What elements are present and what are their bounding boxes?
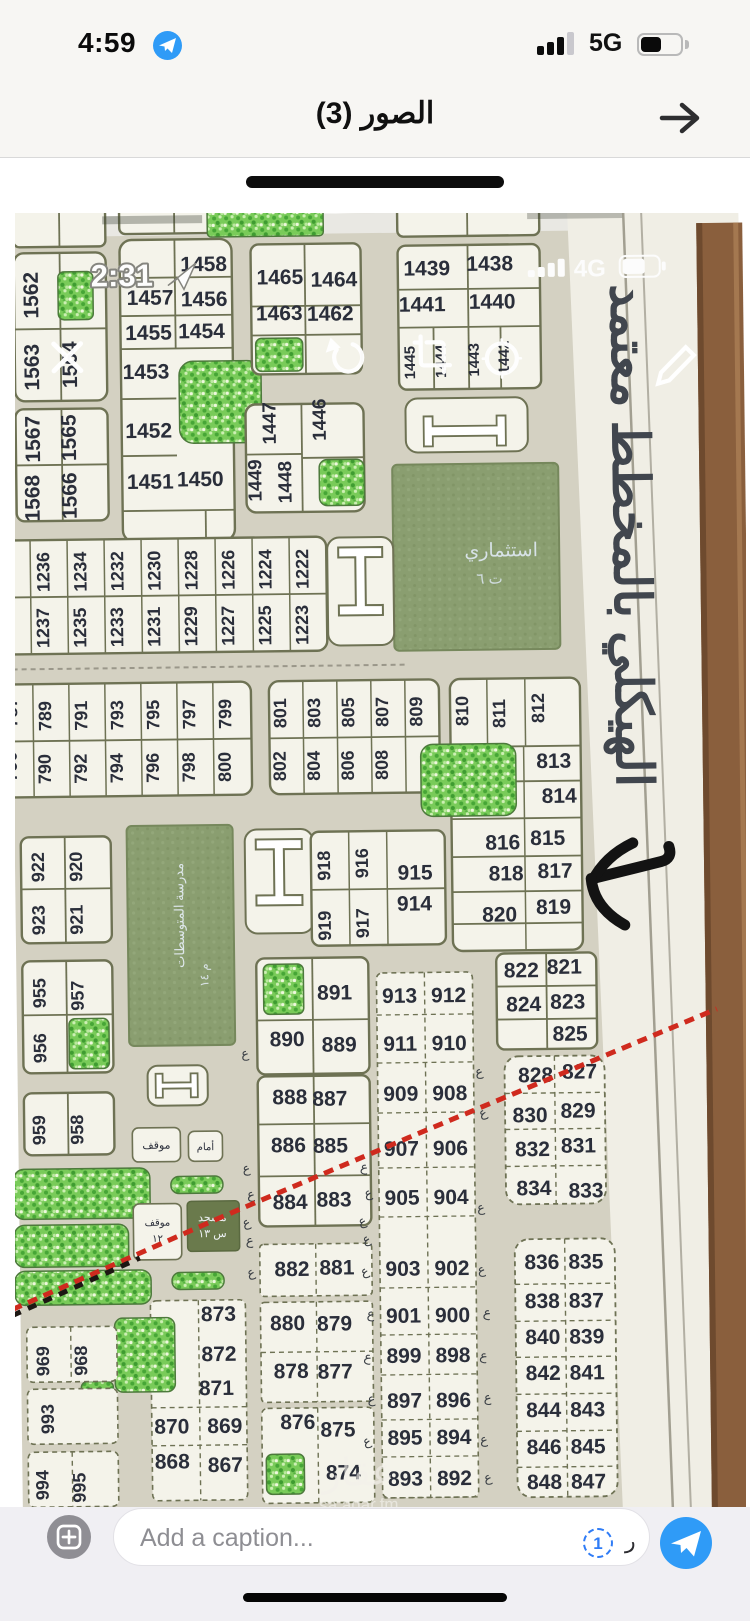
svg-text:ع: ع — [484, 1390, 493, 1406]
svg-text:805: 805 — [338, 697, 358, 727]
svg-text:1447: 1447 — [259, 402, 281, 445]
svg-text:883: 883 — [316, 1188, 351, 1211]
svg-text:1446: 1446 — [309, 398, 331, 441]
svg-text:مدرسة المتوسطات: مدرسة المتوسطات — [171, 863, 188, 968]
svg-text:793: 793 — [107, 700, 127, 730]
svg-text:831: 831 — [561, 1134, 597, 1157]
svg-text:879: 879 — [317, 1312, 352, 1335]
svg-text:813: 813 — [536, 750, 571, 773]
svg-text:1235: 1235 — [70, 608, 90, 648]
svg-text:1465: 1465 — [256, 266, 303, 290]
svg-text:958: 958 — [67, 1115, 87, 1145]
svg-text:841: 841 — [570, 1361, 606, 1384]
svg-text:886: 886 — [271, 1134, 306, 1157]
svg-text:804: 804 — [304, 751, 324, 781]
svg-text:892: 892 — [437, 1467, 472, 1490]
svg-text:1563: 1563 — [21, 344, 45, 391]
svg-text:1237: 1237 — [33, 608, 53, 648]
svg-text:ع: ع — [476, 1199, 485, 1216]
svg-text:1222: 1222 — [292, 549, 312, 589]
svg-text:790: 790 — [15, 751, 21, 781]
svg-text:842: 842 — [526, 1362, 561, 1385]
svg-text:797: 797 — [179, 699, 199, 729]
svg-text:1452: 1452 — [125, 420, 172, 444]
svg-text:915: 915 — [397, 861, 433, 884]
svg-text:914: 914 — [397, 892, 433, 915]
svg-text:818: 818 — [488, 862, 524, 885]
svg-text:847: 847 — [571, 1470, 606, 1493]
svg-text:817: 817 — [537, 860, 572, 883]
svg-text:821: 821 — [547, 956, 583, 979]
svg-text:عقار: عقار — [320, 1452, 394, 1496]
svg-text:921: 921 — [66, 905, 86, 935]
svg-text:1450: 1450 — [177, 468, 224, 492]
svg-text:1230: 1230 — [144, 551, 164, 591]
svg-text:1451: 1451 — [127, 470, 174, 494]
svg-text:870: 870 — [154, 1415, 189, 1438]
svg-text:903: 903 — [385, 1258, 420, 1281]
svg-text:875: 875 — [320, 1418, 356, 1441]
svg-text:898: 898 — [435, 1344, 471, 1367]
svg-text:810: 810 — [452, 696, 472, 726]
svg-text:995: 995 — [69, 1473, 89, 1503]
svg-text:1444: 1444 — [433, 344, 450, 378]
svg-text:880: 880 — [270, 1312, 305, 1335]
svg-text:1566: 1566 — [58, 472, 82, 519]
svg-text:885: 885 — [313, 1134, 349, 1157]
svg-text:1228: 1228 — [181, 550, 201, 590]
svg-text:868: 868 — [155, 1450, 191, 1473]
svg-text:802: 802 — [270, 751, 290, 781]
svg-text:912: 912 — [431, 984, 466, 1007]
svg-text:أمام: أمام — [197, 1140, 215, 1153]
svg-text:993: 993 — [38, 1404, 58, 1434]
svg-text:1456: 1456 — [181, 288, 228, 312]
svg-text:1454: 1454 — [178, 320, 225, 344]
svg-text:803: 803 — [304, 698, 324, 728]
svg-text:994: 994 — [32, 1470, 52, 1500]
svg-text:917: 917 — [353, 908, 373, 938]
svg-text:904: 904 — [433, 1186, 469, 1209]
svg-text:1224: 1224 — [255, 549, 275, 589]
svg-text:896: 896 — [436, 1389, 471, 1412]
svg-text:795: 795 — [143, 700, 163, 730]
svg-text:1440: 1440 — [469, 290, 516, 314]
svg-text:801: 801 — [270, 698, 290, 728]
svg-text:1223: 1223 — [292, 605, 312, 645]
svg-text:790: 790 — [35, 754, 55, 784]
svg-text:911: 911 — [383, 1033, 417, 1056]
svg-text:1568: 1568 — [21, 474, 45, 521]
svg-text:1565: 1565 — [57, 414, 81, 461]
svg-text:881: 881 — [319, 1256, 355, 1279]
svg-text:832: 832 — [515, 1138, 550, 1161]
svg-text:895: 895 — [387, 1427, 423, 1450]
svg-text:807: 807 — [372, 697, 392, 727]
svg-text:1455: 1455 — [125, 322, 172, 346]
svg-text:833: 833 — [568, 1179, 603, 1202]
svg-text:س ١٣: س ١٣ — [198, 1228, 226, 1240]
svg-text:923: 923 — [28, 905, 48, 935]
svg-text:902: 902 — [434, 1257, 469, 1280]
svg-text:913: 913 — [382, 985, 417, 1008]
svg-text:878: 878 — [274, 1360, 310, 1383]
svg-text:ع: ع — [367, 1391, 376, 1407]
svg-text:848: 848 — [527, 1471, 563, 1494]
svg-text:1231: 1231 — [144, 607, 164, 647]
svg-text:873: 873 — [201, 1303, 236, 1326]
svg-text:919: 919 — [315, 911, 335, 941]
svg-text:907: 907 — [384, 1138, 419, 1161]
svg-text:1462: 1462 — [307, 302, 354, 326]
svg-text:1441: 1441 — [399, 293, 446, 317]
svg-text:815: 815 — [530, 827, 566, 850]
svg-text:ع: ع — [366, 1306, 375, 1323]
svg-text:1443: 1443 — [466, 343, 483, 377]
svg-text:816: 816 — [485, 831, 520, 854]
svg-text:825: 825 — [552, 1022, 588, 1045]
svg-text:2:31: 2:31 — [91, 258, 153, 294]
svg-text:806: 806 — [338, 750, 358, 780]
svg-text:808: 808 — [372, 750, 392, 780]
svg-text:889: 889 — [322, 1033, 357, 1056]
svg-text:899: 899 — [386, 1345, 421, 1368]
svg-text:787: 787 — [15, 697, 21, 727]
svg-text:823: 823 — [550, 991, 585, 1014]
svg-text:918: 918 — [314, 851, 334, 881]
svg-text:824: 824 — [506, 993, 542, 1016]
svg-text:796: 796 — [143, 753, 163, 783]
svg-text:834: 834 — [516, 1177, 552, 1200]
svg-text:837: 837 — [569, 1289, 604, 1312]
svg-text:1229: 1229 — [181, 606, 201, 646]
svg-text:1227: 1227 — [218, 606, 238, 646]
svg-text:1445: 1445 — [402, 346, 419, 380]
svg-text:959: 959 — [29, 1115, 49, 1145]
svg-text:ت ٦: ت ٦ — [476, 570, 503, 587]
svg-text:891: 891 — [317, 981, 353, 1004]
svg-text:835: 835 — [568, 1250, 604, 1273]
svg-text:838: 838 — [525, 1290, 561, 1313]
svg-text:800: 800 — [215, 752, 235, 782]
svg-text:916: 916 — [352, 848, 372, 878]
svg-text:900: 900 — [435, 1304, 470, 1327]
svg-text:791: 791 — [71, 700, 91, 730]
svg-text:موقف: موقف — [144, 1218, 170, 1229]
svg-text:ع: ع — [247, 1186, 255, 1202]
svg-text:867: 867 — [208, 1454, 243, 1477]
svg-text:1464: 1464 — [310, 268, 357, 292]
svg-text:840: 840 — [525, 1326, 560, 1349]
svg-text:1232: 1232 — [107, 551, 127, 591]
svg-text:798: 798 — [179, 752, 199, 782]
svg-text:845: 845 — [570, 1435, 606, 1458]
svg-text:1562: 1562 — [20, 272, 44, 319]
svg-text:829: 829 — [560, 1099, 595, 1122]
svg-text:910: 910 — [432, 1032, 467, 1055]
svg-text:موقف: موقف — [142, 1140, 170, 1152]
svg-text:882: 882 — [274, 1258, 309, 1281]
svg-text:1233: 1233 — [107, 607, 127, 647]
svg-text:901: 901 — [386, 1305, 422, 1328]
svg-text:877: 877 — [318, 1360, 353, 1383]
svg-text:871: 871 — [199, 1377, 235, 1400]
svg-text:830: 830 — [512, 1104, 547, 1127]
svg-text:1453: 1453 — [122, 361, 169, 385]
svg-text:844: 844 — [526, 1399, 562, 1422]
svg-text:794: 794 — [107, 753, 127, 783]
svg-text:890: 890 — [269, 1028, 304, 1051]
svg-text:809: 809 — [406, 696, 426, 726]
svg-text:1439: 1439 — [403, 257, 450, 281]
svg-text:789: 789 — [35, 701, 55, 731]
svg-text:1236: 1236 — [33, 552, 53, 592]
svg-text:820: 820 — [482, 903, 517, 926]
svg-text:ع: ع — [479, 1432, 488, 1448]
svg-text:4G: 4G — [574, 255, 606, 282]
svg-text:887: 887 — [312, 1087, 347, 1110]
svg-text:906: 906 — [433, 1137, 468, 1160]
svg-text:1463: 1463 — [256, 302, 303, 326]
svg-text:872: 872 — [201, 1343, 236, 1366]
svg-text:956: 956 — [30, 1033, 50, 1063]
svg-text:839: 839 — [569, 1325, 604, 1348]
svg-text:957: 957 — [67, 981, 87, 1011]
svg-text:الهيكلي بالمخطط معتمد: الهيكلي بالمخطط معتمد — [597, 284, 661, 788]
svg-text:ع: ع — [241, 1045, 250, 1062]
svg-text:1234: 1234 — [70, 551, 90, 591]
svg-text:846: 846 — [526, 1436, 561, 1459]
svg-text:812: 812 — [528, 693, 548, 723]
svg-text:1438: 1438 — [466, 252, 513, 276]
svg-text:1449: 1449 — [245, 459, 267, 502]
svg-text:استثماري: استثماري — [464, 540, 538, 562]
svg-text:792: 792 — [71, 754, 91, 784]
svg-text:ع: ع — [245, 1232, 254, 1249]
svg-text:888: 888 — [272, 1086, 308, 1109]
svg-text:836: 836 — [524, 1251, 559, 1274]
svg-text:1448: 1448 — [275, 461, 297, 504]
svg-text:843: 843 — [570, 1398, 605, 1421]
svg-text:814: 814 — [542, 785, 578, 808]
svg-text:822: 822 — [504, 959, 539, 982]
svg-text:908: 908 — [432, 1082, 468, 1105]
svg-text:811: 811 — [489, 699, 509, 728]
svg-text:905: 905 — [384, 1187, 420, 1210]
svg-text:م ١٤: م ١٤ — [197, 963, 211, 987]
svg-text:876: 876 — [280, 1411, 315, 1434]
svg-text:897: 897 — [387, 1390, 422, 1413]
svg-text:894: 894 — [436, 1426, 472, 1449]
svg-text:968: 968 — [71, 1346, 91, 1376]
svg-text:920: 920 — [66, 852, 86, 882]
svg-text:1226: 1226 — [218, 550, 238, 590]
svg-text:1225: 1225 — [255, 605, 275, 645]
svg-text:969: 969 — [33, 1346, 53, 1376]
svg-text:819: 819 — [536, 896, 571, 919]
svg-text:909: 909 — [383, 1083, 418, 1106]
svg-text:1567: 1567 — [22, 416, 46, 463]
svg-text:955: 955 — [29, 978, 49, 1008]
svg-text:799: 799 — [215, 699, 235, 729]
svg-text:869: 869 — [207, 1415, 242, 1438]
svg-text:922: 922 — [28, 852, 48, 882]
